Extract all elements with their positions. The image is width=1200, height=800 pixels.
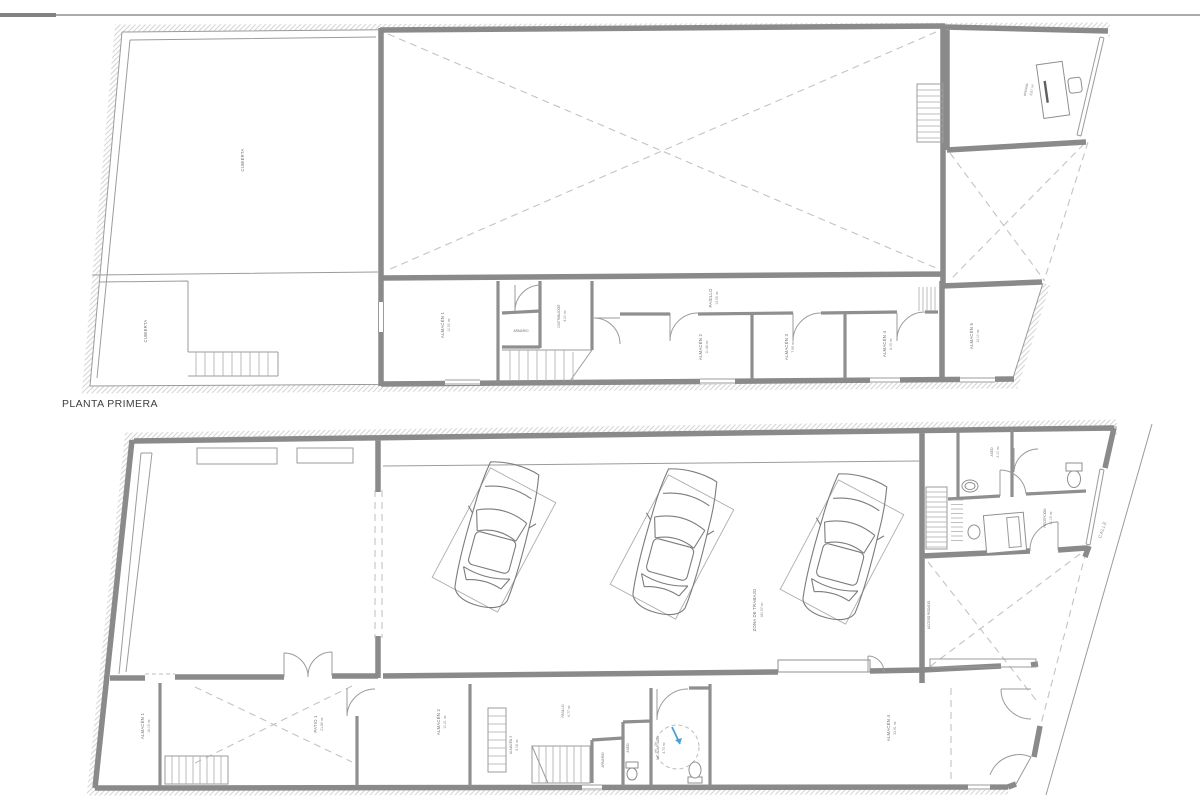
room-area: 8.05 m²	[889, 337, 893, 349]
room-area: 10.52 m²	[447, 317, 451, 331]
room-area: 10.21 m²	[443, 714, 447, 728]
room-area: 3.10 m²	[996, 445, 1000, 457]
room-label-almacen1: ALMACÉN 1	[440, 312, 445, 339]
room-label-almacen4: ALMACÉN 4	[886, 715, 891, 742]
room-label-almacen4: ALMACÉN 4	[882, 331, 887, 358]
room-area: 4.73 m²	[662, 741, 666, 753]
room-area: 21.86 m²	[320, 716, 324, 730]
room-area: 13.55 m²	[715, 290, 719, 304]
room-area: 12.10 m²	[976, 328, 980, 342]
upper-floor-plan: CUBIERTA CUBIERTA OFICINA 8.87 m² ALMACÉ…	[90, 25, 1110, 386]
room-label-almacen2: ALMACÉN 2	[698, 334, 703, 361]
room-label-cubierta-2: CUBIERTA	[143, 320, 148, 343]
room-area: 9.08 m²	[515, 738, 519, 750]
room-area: 33.91 m²	[893, 720, 897, 734]
room-label-almacen3: ALMACÉN 3	[784, 334, 789, 361]
room-label-almacen1: ALMACÉN 1	[140, 713, 145, 740]
room-label-almacen3: ALMACÉN 3	[508, 736, 513, 754]
room-area: 10.15 m²	[1049, 510, 1053, 524]
room-area: 180.97 m²	[760, 602, 764, 618]
room-label-almacen2: ALMACÉN 2	[436, 709, 441, 736]
room-label-wc-adaptado: WC ADAPTADO	[656, 736, 660, 760]
room-label-patio1: PATIO 1	[313, 715, 318, 733]
toilet-icon	[689, 762, 701, 778]
floor-plan-document: CUBIERTA CUBIERTA OFICINA 8.87 m² ALMACÉ…	[0, 0, 1200, 800]
floor-plan-drawing: CUBIERTA CUBIERTA OFICINA 8.87 m² ALMACÉ…	[0, 0, 1200, 800]
lower-floor-plan: CALLE	[95, 424, 1152, 795]
room-label-pasillo: PASILLO	[561, 704, 565, 718]
toilet-tank	[626, 762, 638, 768]
room-area: 11.44 m²	[705, 340, 709, 354]
room-area: 4.20 m²	[563, 309, 567, 321]
workbench-recess	[778, 660, 870, 672]
room-label-aseo: ASEO	[990, 447, 994, 456]
plan-title: PLANTA PRIMERA	[62, 398, 158, 410]
chair-icon	[968, 525, 980, 539]
room-label-cubierta: CUBIERTA	[240, 149, 245, 172]
room-label-armario: ARMARIO	[514, 329, 529, 333]
room-label-recepcion: RECEPCIÓN	[1042, 508, 1047, 528]
room-label-almacen5: ALMACÉN 5	[969, 323, 974, 350]
room-label-distribuidor: DISTRIBUIDOR	[557, 304, 561, 328]
plot-floor	[95, 427, 1117, 788]
room-label-armario: ARMARIO	[601, 752, 605, 767]
plot-floor	[90, 25, 1110, 386]
room-area: 6.77 m²	[567, 704, 571, 716]
street-label: CALLE	[1098, 520, 1109, 539]
room-area: 7.99 m²	[791, 340, 795, 352]
room-label-acceso: ACCESO RODADO	[927, 600, 931, 629]
room-area: 16.15 m²	[147, 718, 151, 732]
room-label-zona-trabajo: ZONA DE TRABAJO	[752, 588, 757, 631]
room-label-pasillo: PASILLO	[708, 288, 713, 307]
toilet-icon	[627, 768, 637, 780]
toilet-icon	[1068, 471, 1081, 488]
room-label-aseo-small: ASEO	[626, 743, 630, 752]
